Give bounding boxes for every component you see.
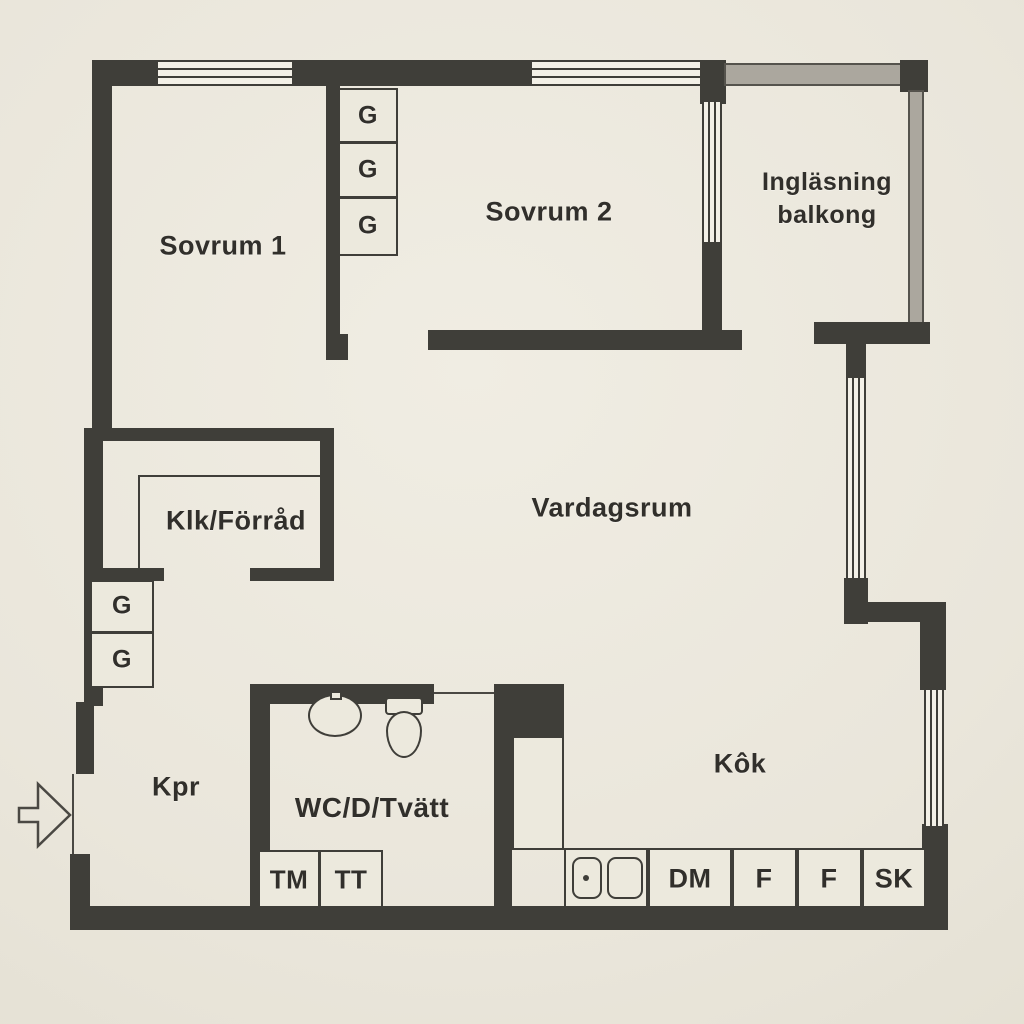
- appliance-label-sk: SK: [875, 864, 914, 895]
- wall: [292, 60, 534, 86]
- sink-basin: [607, 857, 643, 899]
- room-label-kpr: Kpr: [152, 772, 200, 803]
- wall: [428, 330, 742, 350]
- appliance-label-f2: F: [821, 864, 838, 895]
- room-label-sovrum1: Sovrum 1: [159, 231, 286, 262]
- wall: [900, 60, 928, 92]
- room-label-sovrum2: Sovrum 2: [485, 197, 612, 228]
- appliance-label-f1: F: [756, 864, 773, 895]
- window: [924, 688, 944, 826]
- window: [702, 102, 722, 242]
- toilet-bowl: [386, 711, 422, 758]
- wardrobe-label: G: [112, 646, 132, 675]
- appliance-label-tm: TM: [270, 865, 309, 896]
- wall: [70, 906, 948, 930]
- room-label-vardagsrum: Vardagsrum: [531, 493, 692, 524]
- shaft-box: [512, 736, 564, 850]
- window: [846, 378, 866, 578]
- room-label-wc: WC/D/Tvätt: [295, 792, 449, 824]
- wall: [326, 334, 348, 360]
- window: [158, 60, 294, 86]
- appliance-label-dm: DM: [669, 864, 712, 895]
- wall: [814, 322, 930, 344]
- floor-plan-canvas: Sovrum 1 Sovrum 2 Ingläsning balkong Var…: [0, 0, 1024, 1024]
- wardrobe-label: G: [358, 156, 378, 185]
- wardrobe-label: G: [112, 592, 132, 621]
- wardrobe-label: G: [358, 212, 378, 241]
- bathroom-sink: [308, 694, 362, 737]
- wall: [700, 60, 726, 104]
- balcony-glazing: [724, 63, 904, 86]
- wall: [844, 578, 868, 624]
- room-label-balcony: Ingläsning balkong: [762, 166, 892, 232]
- window: [532, 60, 702, 86]
- sink-drain-dot: [583, 875, 589, 881]
- wall: [494, 736, 512, 906]
- wall: [846, 344, 866, 378]
- wall: [92, 60, 112, 432]
- wall: [320, 428, 334, 570]
- room-label-klk: Klk/Förråd: [166, 506, 306, 537]
- bathroom-sink-tap: [330, 691, 342, 700]
- room-label-kok: Kôk: [714, 749, 767, 780]
- wall: [92, 428, 334, 441]
- wardrobe-label: G: [358, 102, 378, 131]
- wall: [920, 620, 946, 690]
- balcony-label-line2: balkong: [762, 199, 892, 232]
- wall: [494, 684, 564, 736]
- wc-door-line: [434, 692, 494, 694]
- appliance-label-tt: TT: [335, 865, 368, 896]
- balcony-glazing: [908, 90, 924, 326]
- entrance-arrow-icon: [16, 778, 74, 852]
- balcony-label-line1: Ingläsning: [762, 166, 892, 199]
- wall: [76, 702, 94, 774]
